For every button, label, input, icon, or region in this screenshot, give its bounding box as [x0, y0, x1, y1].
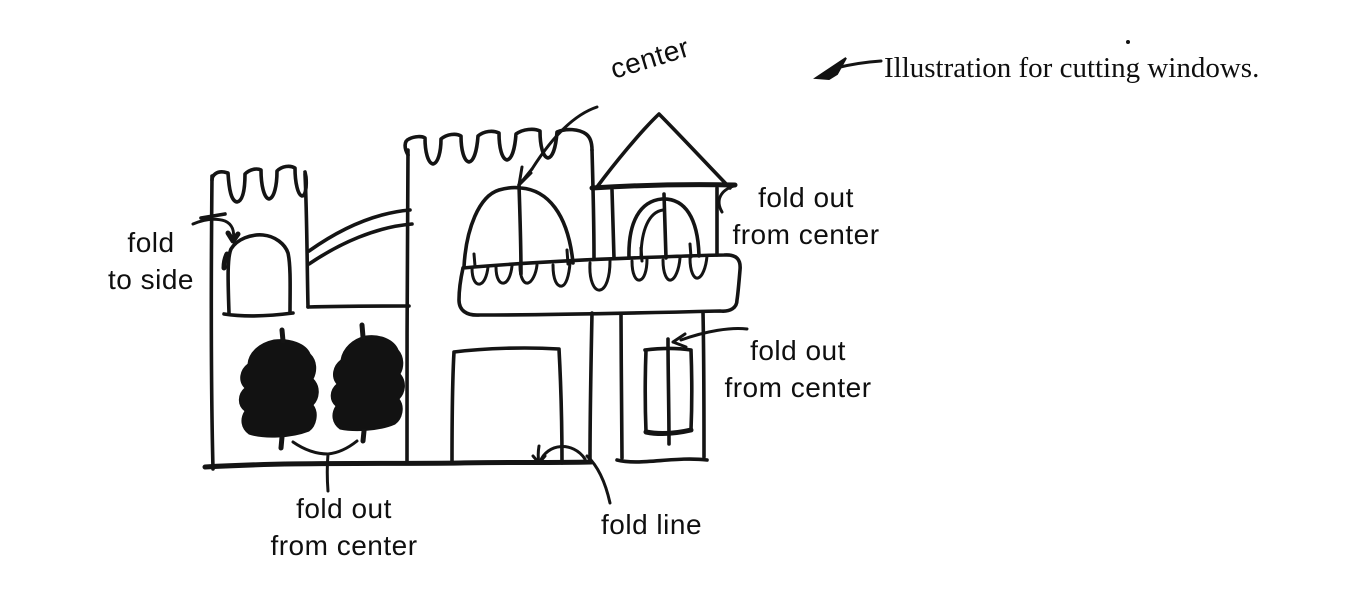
- label-fold-out-bottom-line2: from center: [252, 527, 436, 564]
- label-fold-out-lower-right: fold out from center: [708, 332, 888, 406]
- center-arrow: [519, 107, 597, 185]
- label-fold-out-bottom-line1: fold out: [252, 490, 436, 527]
- ground-line: [205, 462, 591, 467]
- band-ticks: [474, 244, 691, 266]
- main-wall-battlements: [405, 129, 592, 164]
- main-wall: [405, 129, 594, 463]
- roof: [597, 114, 730, 188]
- bridge-curves: [309, 210, 412, 264]
- label-fold-out-bottom: fold out from center: [252, 490, 436, 564]
- blacked-window-right: [331, 336, 404, 431]
- label-fold-line: fold line: [601, 506, 702, 543]
- label-fold-out-upper-right: fold out from center: [718, 179, 894, 253]
- label-fold-out-upper-line2: from center: [718, 216, 894, 253]
- label-fold-out-lower-line2: from center: [708, 369, 888, 406]
- fold-line-arrow: [533, 446, 610, 503]
- left-tower-battlements: [212, 166, 306, 202]
- door: [452, 348, 562, 463]
- label-fold-out-lower-line1: fold out: [708, 332, 888, 369]
- label-fold-out-upper-line1: fold out: [718, 179, 894, 216]
- label-fold-to-side-line2: to side: [96, 261, 206, 298]
- blacked-window-left: [239, 340, 318, 438]
- illustration-canvas: Illustration for cutting windows. center…: [0, 0, 1369, 593]
- roof-tower: [592, 114, 735, 258]
- label-fold-to-side: fold to side: [96, 224, 206, 298]
- caption-text: Illustration for cutting windows.: [884, 52, 1259, 85]
- label-fold-to-side-line1: fold: [96, 224, 206, 261]
- left-tower-arched-window: [228, 235, 290, 313]
